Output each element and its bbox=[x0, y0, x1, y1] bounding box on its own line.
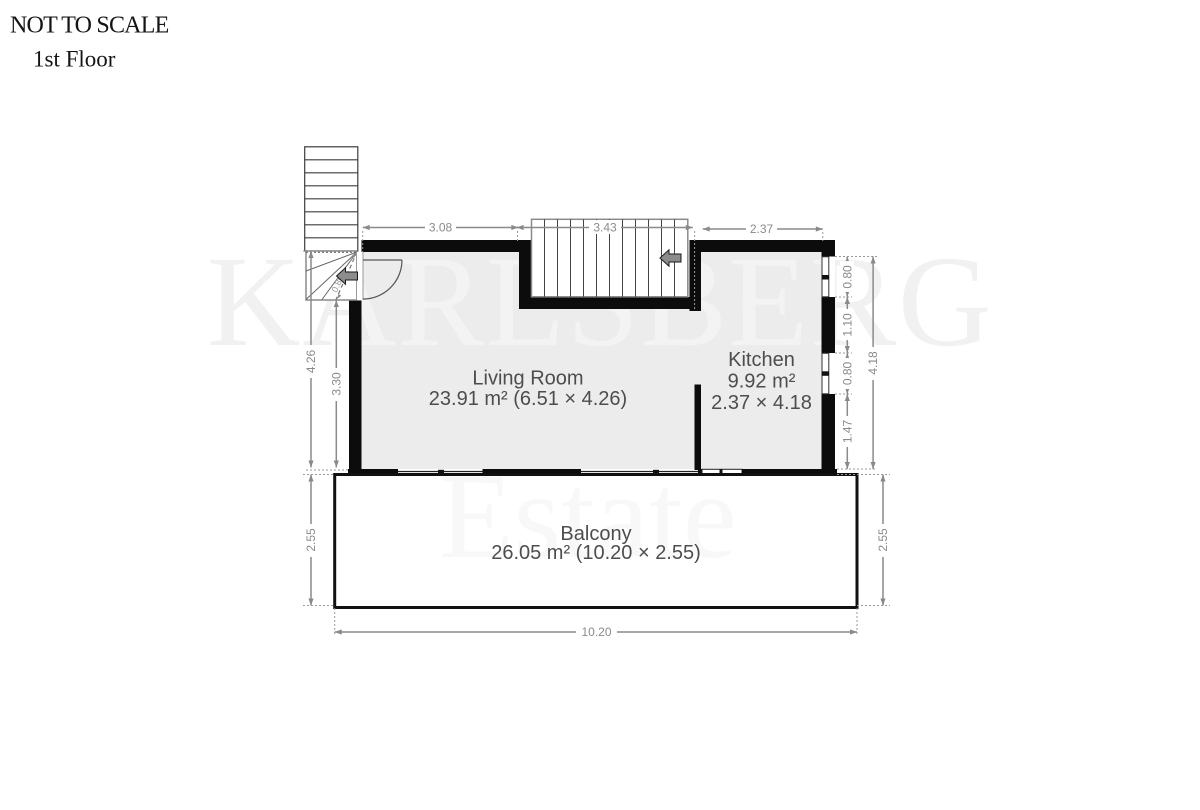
svg-text:2.37 × 4.18: 2.37 × 4.18 bbox=[711, 392, 812, 414]
svg-text:3.43: 3.43 bbox=[593, 221, 617, 235]
svg-text:2.37: 2.37 bbox=[750, 222, 774, 236]
svg-text:2.55: 2.55 bbox=[304, 528, 318, 552]
svg-text:23.91 m² (6.51 × 4.26): 23.91 m² (6.51 × 4.26) bbox=[429, 388, 627, 410]
svg-text:Living Room: Living Room bbox=[472, 368, 583, 390]
svg-text:10.20: 10.20 bbox=[581, 625, 611, 639]
svg-text:Kitchen: Kitchen bbox=[728, 349, 795, 371]
svg-text:1st Floor: 1st Floor bbox=[33, 47, 116, 72]
svg-text:0.80: 0.80 bbox=[840, 265, 854, 289]
svg-text:3.30: 3.30 bbox=[329, 372, 343, 396]
svg-text:0.80: 0.80 bbox=[840, 361, 854, 385]
svg-text:3.08: 3.08 bbox=[429, 221, 453, 235]
svg-text:4.26: 4.26 bbox=[304, 349, 318, 373]
svg-text:NOT TO SCALE: NOT TO SCALE bbox=[10, 13, 169, 39]
svg-text:9.92 m²: 9.92 m² bbox=[728, 371, 796, 393]
svg-text:1.10: 1.10 bbox=[840, 313, 854, 337]
svg-text:26.05 m² (10.20 × 2.55): 26.05 m² (10.20 × 2.55) bbox=[491, 542, 701, 564]
svg-text:2.55: 2.55 bbox=[876, 528, 890, 552]
svg-text:1.47: 1.47 bbox=[840, 419, 854, 443]
svg-text:4.18: 4.18 bbox=[866, 351, 880, 375]
